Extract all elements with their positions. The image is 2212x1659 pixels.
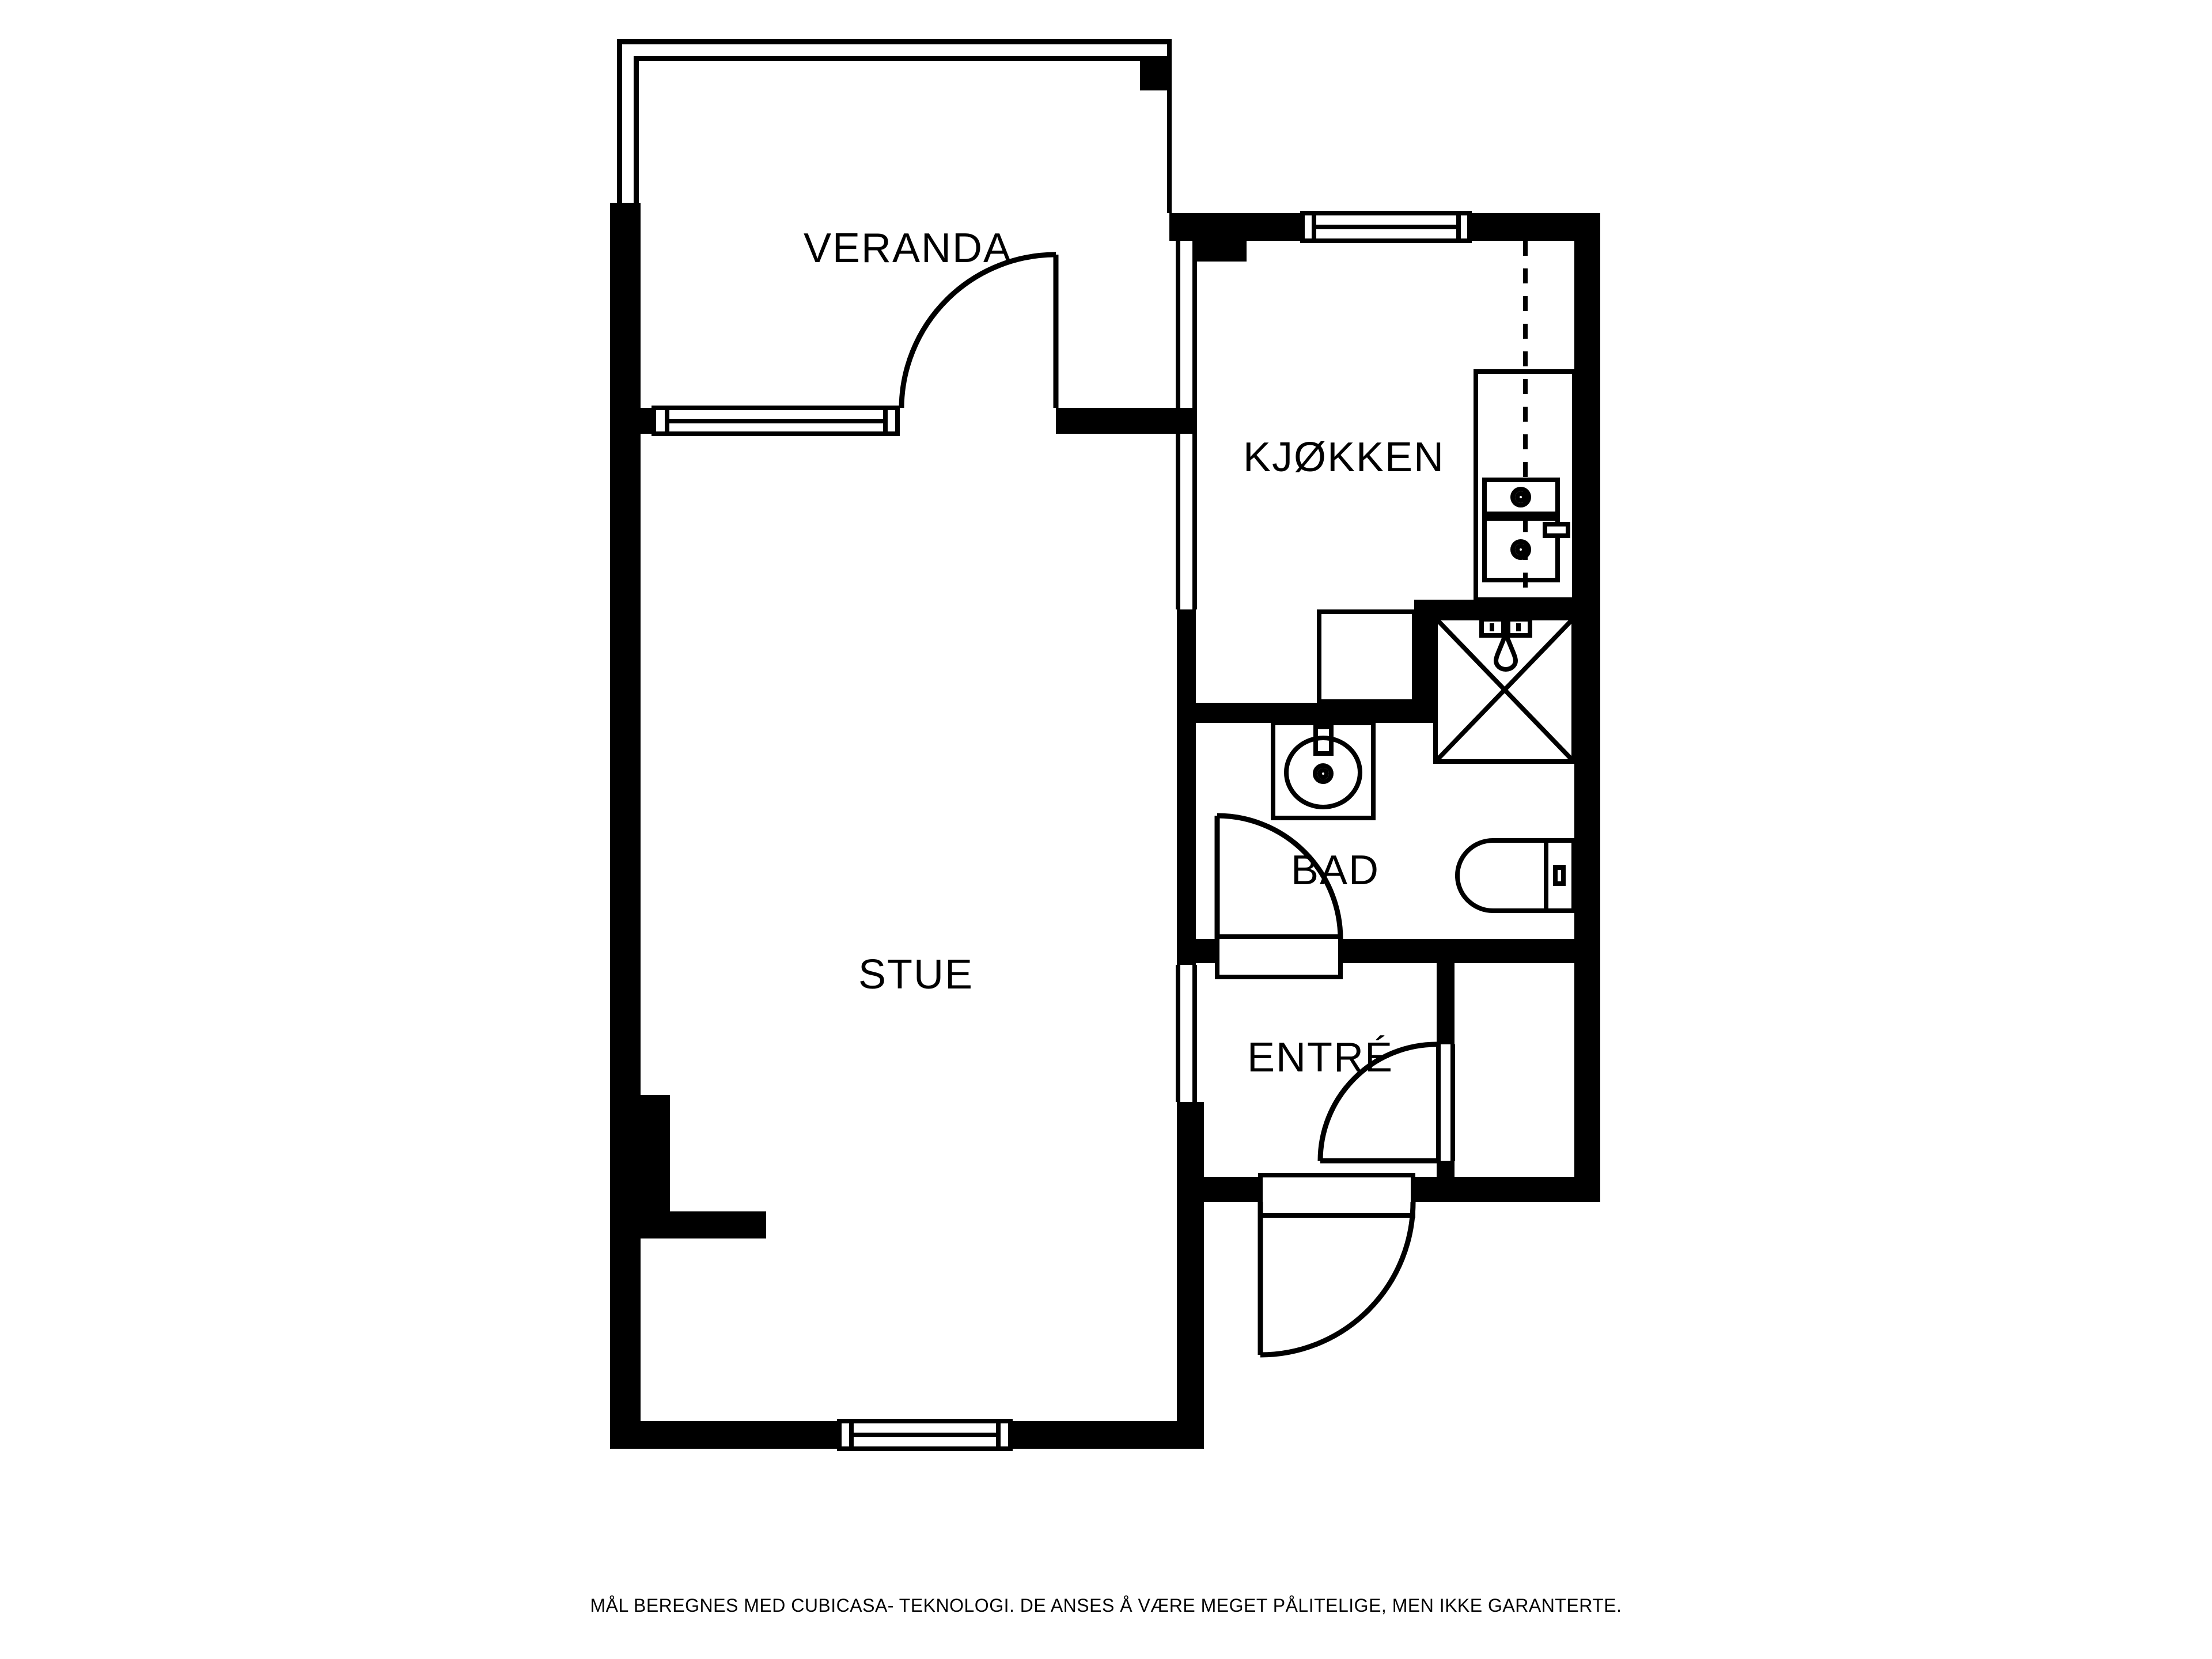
wall-projection-horizontal bbox=[641, 1211, 766, 1238]
floor-plan-page: VERANDA KJØKKEN STUE BAD ENTRÉ MÅL BEREG… bbox=[0, 0, 2212, 1659]
threshold-bad bbox=[1217, 937, 1340, 977]
exterior-wall-bottom-entre-right bbox=[1413, 1177, 1600, 1202]
shower-icon bbox=[1435, 618, 1574, 762]
wall-veranda-stue-left bbox=[610, 408, 654, 434]
window-veranda-icon bbox=[654, 408, 897, 434]
exterior-wall-bottom-stue-left bbox=[610, 1421, 839, 1449]
exterior-wall-bottom-stue-right bbox=[1010, 1421, 1204, 1449]
room-label-veranda: VERANDA bbox=[804, 225, 1012, 271]
interior-wall-bath-entre bbox=[1340, 939, 1574, 963]
window-kitchen-icon bbox=[1302, 213, 1469, 241]
wall-pier-kitchen-corner bbox=[1196, 240, 1247, 262]
toilet-icon bbox=[1457, 840, 1574, 911]
kitchen-cabinet bbox=[1319, 612, 1414, 702]
interior-wall-bath-north bbox=[1196, 703, 1435, 723]
footer-disclaimer-text: MÅL BEREGNES MED CUBICASA- TEKNOLOGI. DE… bbox=[590, 1595, 1622, 1616]
railing-top-outer bbox=[617, 39, 1171, 44]
interior-wall-closet-upper bbox=[1437, 963, 1455, 1044]
interior-wall-bath-entre-stub bbox=[1196, 939, 1217, 963]
room-label-stue: STUE bbox=[858, 952, 974, 998]
threshold-entrance bbox=[1260, 1175, 1413, 1215]
room-label-kjokken: KJØKKEN bbox=[1243, 434, 1445, 480]
veranda-post bbox=[1140, 58, 1171, 90]
interior-wall-closet-lower bbox=[1437, 1161, 1455, 1177]
railing-top-inner bbox=[634, 56, 1171, 61]
room-label-bad: BAD bbox=[1291, 847, 1380, 893]
room-label-entre: ENTRÉ bbox=[1247, 1035, 1393, 1081]
canvas-background bbox=[0, 0, 2212, 1659]
cooktop-handle-icon bbox=[1545, 524, 1568, 536]
interior-wall-kitchen-bath bbox=[1414, 600, 1574, 617]
railing-left-inner bbox=[634, 56, 639, 204]
exterior-wall-left bbox=[610, 203, 641, 1449]
exterior-wall-right bbox=[1574, 213, 1600, 1202]
interior-wall-spine-upper bbox=[1177, 609, 1196, 965]
bathroom-sink-icon bbox=[1273, 723, 1373, 818]
wall-veranda-stue-right bbox=[1056, 408, 1196, 434]
window-stue-icon bbox=[839, 1421, 1010, 1449]
kitchen-sink-icon bbox=[1484, 480, 1558, 514]
floor-plan-svg: VERANDA KJØKKEN STUE BAD ENTRÉ MÅL BEREG… bbox=[0, 0, 2212, 1659]
exterior-wall-bottom-entre-left bbox=[1204, 1177, 1260, 1202]
exterior-wall-top-kitchen-left bbox=[1169, 213, 1302, 241]
interior-wall-spine-lower bbox=[1177, 1102, 1204, 1449]
